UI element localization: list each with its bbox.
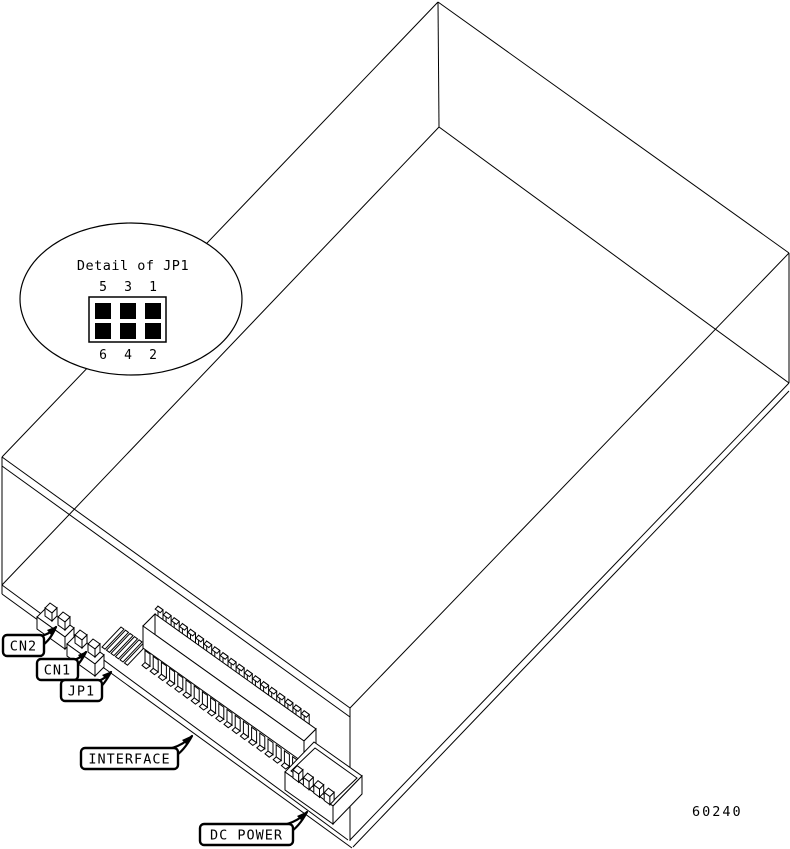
jp1-pin-label-1: 1 [149, 280, 157, 295]
callout-cn2-label: CN2 [10, 639, 37, 655]
jp1-pin-square [95, 323, 111, 339]
callout-dc-power-label: DC POWER [210, 828, 283, 844]
figure-number: 60240 [692, 804, 743, 820]
jp1-pin-label-3: 3 [124, 280, 132, 295]
jp1-pin-square [145, 303, 161, 319]
callout-interface: INTERFACE [81, 735, 193, 769]
callout-dc-power: DC POWER [200, 811, 308, 845]
drive-wireframe [2, 2, 789, 848]
jp1-detail-bubble: Detail of JP1 5 3 1 6 4 2 [20, 223, 242, 375]
drive-rear-connector-diagram: Detail of JP1 5 3 1 6 4 2 [0, 0, 790, 849]
jp1-pin-square [95, 303, 111, 319]
jp1-pin-square [120, 323, 136, 339]
jp1-pin-square [120, 303, 136, 319]
detail-title: Detail of JP1 [77, 258, 189, 274]
jp1-connector [102, 627, 147, 665]
diagram-page: Detail of JP1 5 3 1 6 4 2 [0, 0, 790, 849]
jp1-pin-label-5: 5 [99, 280, 107, 295]
callout-interface-label: INTERFACE [88, 752, 170, 768]
callout-cn2: CN2 [3, 626, 57, 656]
jp1-pin-label-6: 6 [99, 348, 107, 363]
jp1-pin-square [145, 323, 161, 339]
jp1-pin-label-4: 4 [124, 348, 132, 363]
jp1-pin-label-2: 2 [149, 348, 157, 363]
callout-cn1-label: CN1 [44, 663, 71, 679]
callout-jp1-label: JP1 [68, 684, 95, 700]
